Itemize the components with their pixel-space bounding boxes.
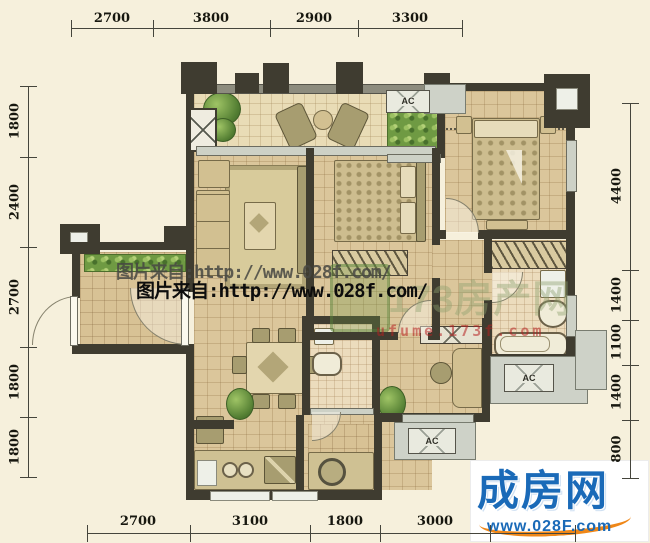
dim-left-1: 2400 bbox=[8, 184, 23, 220]
dim-tick bbox=[622, 320, 639, 321]
dim-tick bbox=[153, 20, 154, 37]
dim-bottom-3: 3000 bbox=[417, 514, 453, 529]
dim-tick bbox=[358, 20, 359, 37]
wok-burner bbox=[318, 458, 346, 486]
dining-chair-2 bbox=[278, 328, 296, 343]
dim-tick bbox=[380, 525, 381, 542]
dim-left-3: 1800 bbox=[8, 364, 23, 400]
dim-tick bbox=[190, 525, 191, 542]
bedroom2-pillow-1 bbox=[400, 166, 416, 198]
dim-tick bbox=[490, 525, 491, 542]
living-armchair bbox=[198, 160, 230, 188]
ac-unit-bottom: AC bbox=[408, 428, 456, 454]
dim-tick bbox=[20, 86, 37, 87]
window-master-right bbox=[566, 140, 577, 192]
wall-living-bedroom2 bbox=[306, 148, 314, 334]
dim-tick bbox=[622, 365, 639, 366]
dim-tick bbox=[20, 157, 37, 158]
entry-door-leaf bbox=[70, 296, 78, 346]
master-pillows bbox=[474, 120, 538, 138]
master-nightstand-left bbox=[456, 116, 472, 134]
dim-line-top bbox=[71, 28, 462, 29]
kitchen-stove bbox=[264, 456, 296, 484]
kitchen-sink-bowl-2 bbox=[238, 462, 254, 478]
ac-label: AC bbox=[521, 374, 538, 383]
dim-tick bbox=[20, 417, 37, 418]
study-desk bbox=[452, 348, 482, 408]
bedroom2-pillow-2 bbox=[400, 202, 416, 234]
wall-bedroom2-corridor-a bbox=[432, 148, 440, 245]
pillar bbox=[181, 62, 217, 94]
dim-top-0: 2700 bbox=[94, 11, 130, 26]
dim-tick bbox=[20, 347, 37, 348]
dining-plant bbox=[226, 388, 254, 420]
pillar bbox=[336, 62, 363, 94]
dim-right-3: 1400 bbox=[610, 374, 625, 410]
dim-tick bbox=[71, 20, 72, 37]
wall-kitchen-top-stub bbox=[186, 420, 234, 429]
ac-unit-top: AC bbox=[386, 90, 430, 113]
dim-bottom-1: 3100 bbox=[232, 514, 268, 529]
dim-tick bbox=[462, 20, 463, 37]
dim-top-2: 2900 bbox=[296, 11, 332, 26]
dim-tick bbox=[622, 420, 639, 421]
wall-porch-left bbox=[72, 248, 80, 298]
study-chair bbox=[430, 362, 452, 384]
site-logo: 成房网 www.028F.com bbox=[471, 461, 648, 541]
dim-tick bbox=[270, 20, 271, 37]
wall-kitchen-wok-divider bbox=[296, 415, 304, 495]
dim-tick bbox=[575, 525, 576, 542]
dim-left-2: 2700 bbox=[8, 279, 23, 315]
dining-chair-5 bbox=[232, 356, 247, 374]
dining-chair-1 bbox=[252, 328, 270, 343]
ac-unit-right: AC bbox=[504, 364, 554, 392]
watermark-credit-black: 图片来自:http://www.028f.com/ bbox=[136, 276, 427, 303]
dim-line-right bbox=[630, 103, 631, 478]
pillar bbox=[235, 73, 259, 93]
dining-chair-3 bbox=[252, 394, 270, 409]
dining-chair-4 bbox=[278, 394, 296, 409]
pillar bbox=[263, 63, 289, 93]
service-platform-right bbox=[575, 330, 607, 390]
balcony-round-table bbox=[313, 110, 333, 130]
floorplan-screenshot: AC AC AC 图片来自:http://www.028f.com/ 图片来自:… bbox=[0, 0, 650, 543]
master-bench bbox=[486, 220, 528, 230]
dim-right-2: 1100 bbox=[610, 324, 625, 360]
dim-top-1: 3800 bbox=[193, 11, 229, 26]
dim-tick bbox=[20, 477, 37, 478]
corner-pillar-core bbox=[556, 88, 578, 110]
dim-left-4: 1800 bbox=[8, 429, 23, 465]
bedroom2-headboard bbox=[416, 160, 426, 242]
dim-tick bbox=[622, 478, 639, 479]
window-kitchen-2 bbox=[272, 491, 318, 501]
master-blanket-fold bbox=[506, 150, 522, 184]
wall-porch-threshold bbox=[72, 344, 194, 354]
dim-tick bbox=[310, 525, 311, 542]
bathroom2-shower-tub bbox=[312, 352, 342, 376]
dim-right-0: 4400 bbox=[610, 168, 625, 204]
dim-line-left bbox=[28, 86, 29, 477]
dim-top-3: 3300 bbox=[392, 11, 428, 26]
kitchen-cabinet-door bbox=[197, 460, 217, 486]
dim-right-1: 1400 bbox=[610, 277, 625, 313]
ac-platform-top bbox=[424, 84, 466, 114]
dim-tick bbox=[20, 247, 37, 248]
ac-label: AC bbox=[424, 437, 441, 446]
wall-porch-top bbox=[68, 242, 188, 250]
wall-master-bottom-b bbox=[478, 230, 574, 239]
dim-bottom-2: 1800 bbox=[327, 514, 363, 529]
kitchen-sink-bowl-1 bbox=[222, 462, 238, 478]
dim-tick bbox=[87, 525, 88, 542]
dim-tick bbox=[622, 270, 639, 271]
dim-left-0: 1800 bbox=[8, 103, 23, 139]
dim-right-4: 800 bbox=[610, 435, 625, 462]
wall-wok-right bbox=[374, 415, 382, 495]
window-kitchen-1 bbox=[210, 491, 270, 501]
dim-tick bbox=[622, 103, 639, 104]
dim-line-bottom bbox=[87, 533, 575, 534]
wall-bath2-left bbox=[302, 316, 310, 415]
ac-label: AC bbox=[400, 97, 417, 106]
master-wardrobe bbox=[490, 241, 568, 269]
dim-bottom-0: 2700 bbox=[120, 514, 156, 529]
watermark-brand-url: ufume.173f.com bbox=[376, 322, 544, 340]
